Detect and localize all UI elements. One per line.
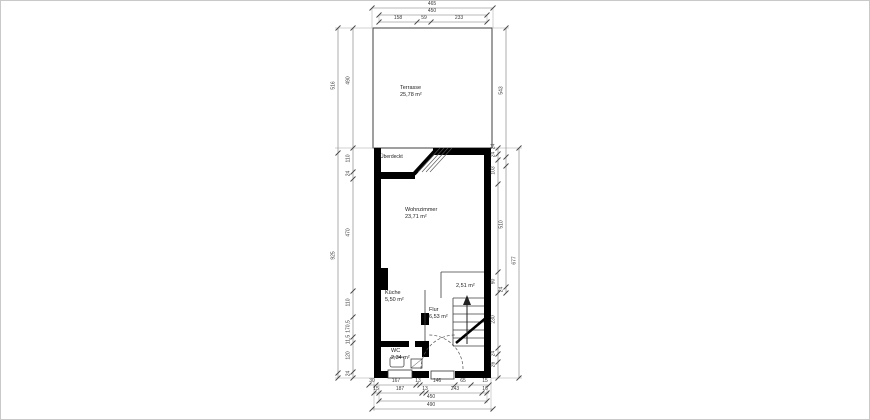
dim-bottom-overall: 490 xyxy=(413,403,449,408)
wall-right xyxy=(484,148,491,378)
dim-label: 490 xyxy=(347,63,352,99)
dim-label: 233 xyxy=(441,16,477,21)
room-name: Terrasse xyxy=(400,85,422,92)
kitchen-wall-stub xyxy=(374,268,388,290)
dim-top-inner: 450 xyxy=(414,9,450,14)
wc-door-post xyxy=(415,341,429,347)
floor-plan-page: Terrasse 25,78 m² Wohnzimmer 23,71 m² Kü… xyxy=(0,0,870,420)
dim-label: 103 xyxy=(492,153,497,189)
dim-label: 59 xyxy=(406,16,442,21)
dim-label: 677 xyxy=(513,243,518,279)
terrace-outline xyxy=(373,28,492,148)
room-name: Küche xyxy=(385,290,404,297)
dim-label: 925 xyxy=(332,238,337,274)
dim-label: 510 xyxy=(500,207,505,243)
dim-label: 543 xyxy=(500,73,505,109)
dim-label: 516 xyxy=(332,68,337,104)
stair-arrow-head xyxy=(463,295,471,305)
dim-label: 24 xyxy=(500,272,505,308)
dim-label: 470 xyxy=(347,215,352,251)
room-area: 23,71 m² xyxy=(405,214,437,221)
room-area: 6,53 m² xyxy=(429,314,448,321)
room-area: 2,51 m² xyxy=(456,283,475,290)
room-name: Flur xyxy=(429,307,448,314)
room-label-kueche: Küche 5,50 m² xyxy=(385,290,404,304)
dim-label: 90 xyxy=(492,264,497,300)
room-area: 2,34 m² xyxy=(391,355,410,362)
terrace-door-leaf xyxy=(414,150,436,174)
dim-label: 26 xyxy=(492,347,497,383)
room-area: 25,78 m² xyxy=(400,92,422,99)
dim-label: 230 xyxy=(492,302,497,338)
dim-label: 15 xyxy=(467,379,503,384)
room-label-wc: WC 2,34 m² xyxy=(391,348,410,362)
room-label-terrasse: Terrasse 25,78 m² xyxy=(400,85,422,99)
dim-bottom-inner: 450 xyxy=(413,395,449,400)
dim-label: 16 xyxy=(467,387,503,392)
room-label-wohnzimmer: Wohnzimmer 23,71 m² xyxy=(405,207,437,221)
dim-top-overall: 465 xyxy=(414,2,450,7)
covered-area-note: Überdeckt xyxy=(380,154,403,160)
porch-wall xyxy=(381,172,415,179)
room-label-flur: Flur 6,53 m² xyxy=(429,307,448,321)
room-area: 5,50 m² xyxy=(385,297,404,304)
dim-label: 24 xyxy=(347,356,352,392)
dim-label: 24 xyxy=(347,156,352,192)
room-name: Wohnzimmer xyxy=(405,207,437,214)
wall-left xyxy=(374,148,381,378)
room-label-abstellraum: 2,51 m² xyxy=(456,283,475,290)
wc-window xyxy=(388,370,412,378)
wc-wall-top xyxy=(381,341,409,347)
room-name: WC xyxy=(391,348,410,355)
